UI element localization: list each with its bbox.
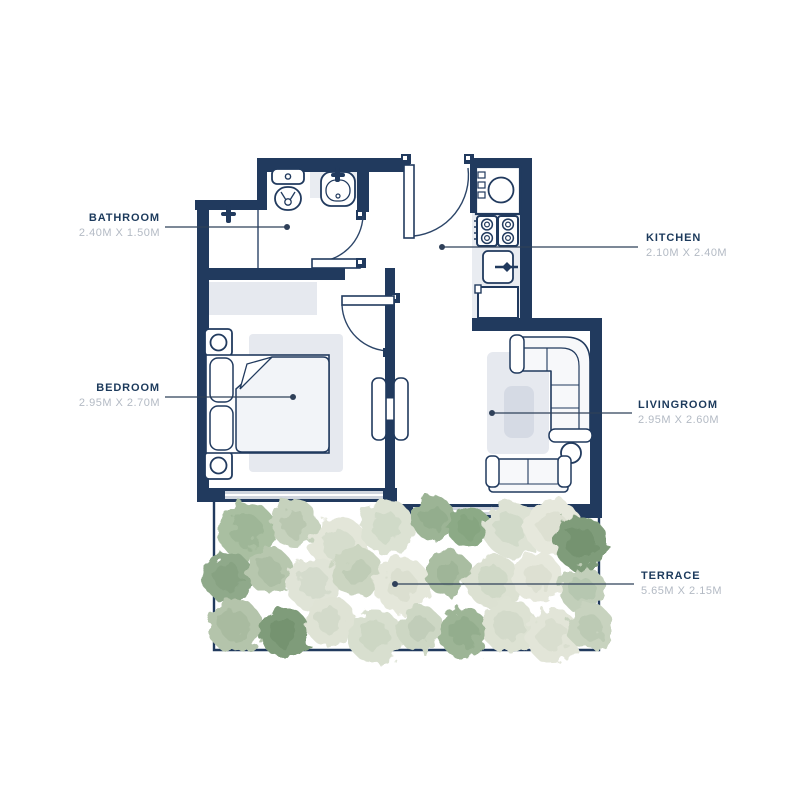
bedroom-label: BEDROOM 2.95M X 2.70M (79, 382, 160, 410)
kitchen-sink-icon (483, 251, 518, 283)
wall-kitchen-bottom (472, 318, 602, 331)
stove-icon (474, 216, 518, 246)
wall-hall-bedroom (197, 268, 345, 280)
kitchen-name: KITCHEN (646, 232, 727, 245)
bedroom-dims: 2.95M X 2.70M (79, 397, 160, 410)
kitchen-label: KITCHEN 2.10M X 2.40M (646, 232, 727, 260)
washing-machine-icon (476, 167, 520, 214)
kitchen-fixtures (474, 167, 520, 318)
wall-bath-right (357, 158, 369, 212)
pillow (210, 358, 233, 402)
pillow (210, 406, 233, 450)
bathroom-name: BATHROOM (79, 212, 160, 225)
bathroom-dims: 2.40M X 1.50M (79, 227, 160, 240)
two-seat-sofa-icon (486, 456, 571, 492)
bathroom-fixtures (221, 167, 355, 268)
wardrobe (205, 282, 317, 315)
livingroom-name: LIVINGROOM (638, 399, 719, 412)
double-bed-icon (206, 355, 329, 453)
kitchen-leader (439, 244, 638, 250)
coffee-table (504, 386, 534, 438)
entrance-door (401, 154, 474, 238)
bathroom-leader (165, 224, 290, 230)
nightstand-top-icon (205, 329, 232, 356)
bedroom-window-line (225, 494, 383, 496)
terrace-name: TERRACE (641, 570, 722, 583)
bathroom-door (312, 210, 366, 268)
bathroom-label: BATHROOM 2.40M X 1.50M (79, 212, 160, 240)
bathroom-sink-icon (321, 167, 355, 206)
toilet-icon (272, 169, 304, 210)
kitchen-dims: 2.10M X 2.40M (646, 247, 727, 260)
livingroom-label: LIVINGROOM 2.95M X 2.60M (638, 399, 719, 427)
livingroom-dims: 2.95M X 2.60M (638, 414, 719, 427)
bedroom-name: BEDROOM (79, 382, 160, 395)
nightstand-bottom-icon (205, 452, 232, 479)
wall-living-right (590, 318, 602, 518)
terrace-dims: 5.65M X 2.15M (641, 585, 722, 598)
fridge-icon (475, 285, 518, 318)
floor-plan-page: BATHROOM 2.40M X 1.50M KITCHEN 2.10M X 2… (0, 0, 800, 800)
wall-kitchen-right (520, 158, 532, 330)
terrace-trees-icon (203, 496, 613, 663)
terrace-label: TERRACE 5.65M X 2.15M (641, 570, 722, 598)
